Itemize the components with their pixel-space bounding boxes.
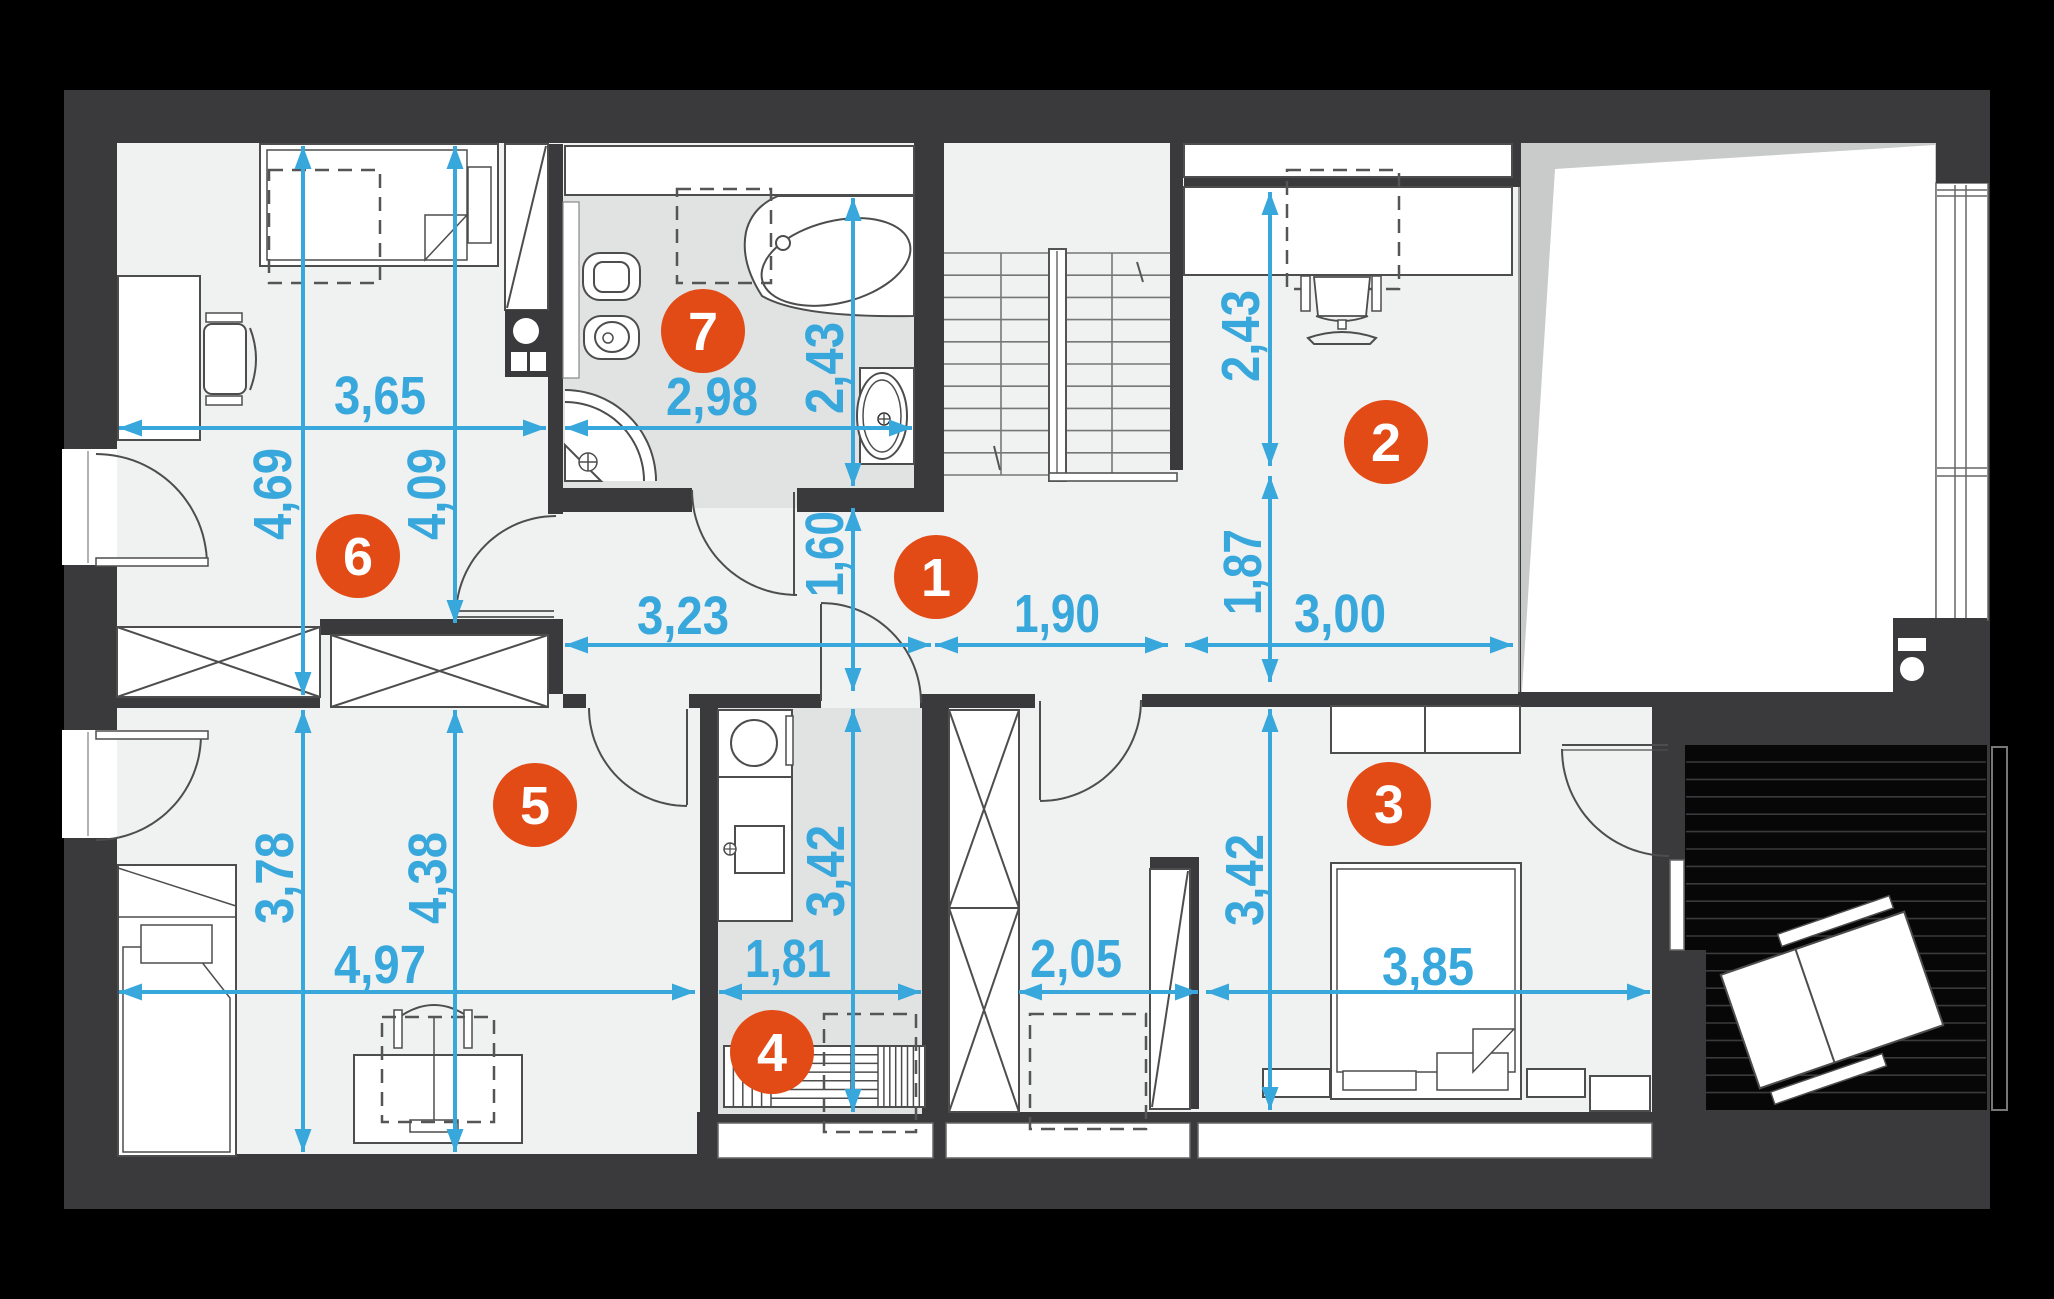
svg-text:2: 2 <box>1371 413 1401 473</box>
svg-text:1,90: 1,90 <box>1014 584 1100 644</box>
svg-text:4: 4 <box>757 1023 787 1083</box>
svg-text:1: 1 <box>921 548 951 608</box>
svg-text:3: 3 <box>1374 775 1404 835</box>
svg-text:6: 6 <box>343 527 373 587</box>
svg-text:4,97: 4,97 <box>334 935 426 995</box>
svg-text:1,81: 1,81 <box>745 929 831 989</box>
svg-text:3,78: 3,78 <box>245 832 305 924</box>
svg-text:4,38: 4,38 <box>398 832 458 924</box>
svg-text:3,42: 3,42 <box>796 825 856 917</box>
svg-text:3,42: 3,42 <box>1215 834 1275 926</box>
svg-text:2,98: 2,98 <box>666 367 758 427</box>
svg-text:1,87: 1,87 <box>1213 529 1273 615</box>
svg-text:4,69: 4,69 <box>243 448 303 540</box>
svg-text:3,23: 3,23 <box>637 586 729 646</box>
svg-text:4,09: 4,09 <box>397 448 457 540</box>
svg-text:2,43: 2,43 <box>795 322 855 414</box>
svg-text:7: 7 <box>688 302 718 362</box>
svg-text:3,00: 3,00 <box>1294 584 1386 644</box>
svg-text:3,85: 3,85 <box>1382 937 1474 997</box>
svg-text:5: 5 <box>520 776 550 836</box>
svg-text:3,65: 3,65 <box>334 366 426 426</box>
svg-text:1,60: 1,60 <box>795 511 855 597</box>
svg-text:2,05: 2,05 <box>1030 929 1122 989</box>
svg-text:2,43: 2,43 <box>1211 290 1271 382</box>
